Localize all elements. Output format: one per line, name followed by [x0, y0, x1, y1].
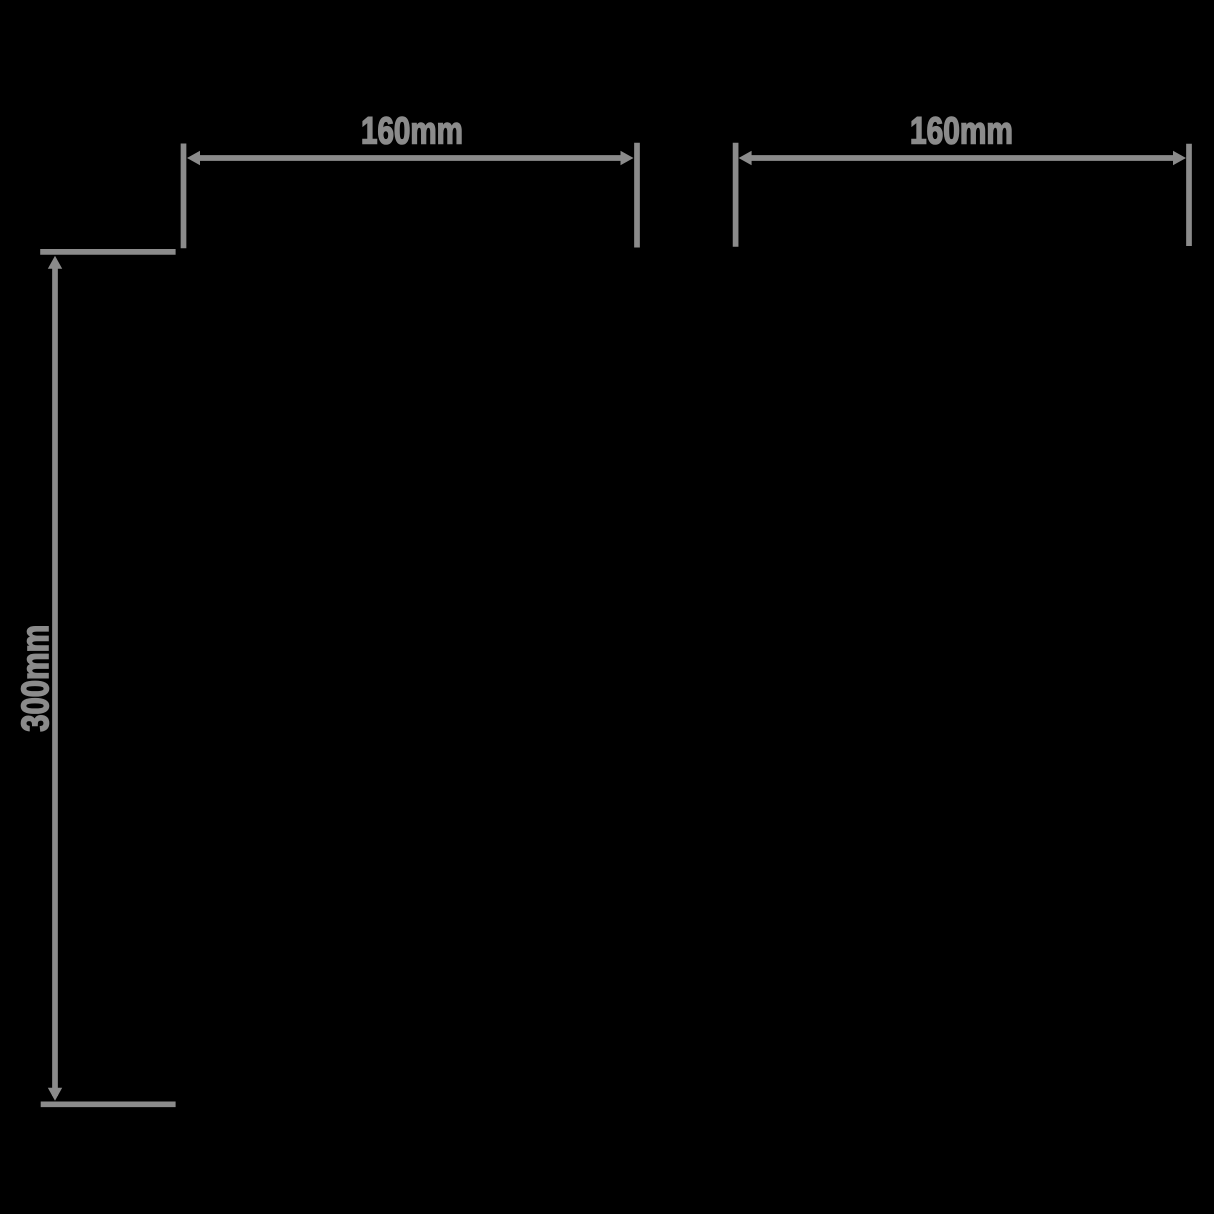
svg-text:300mm: 300mm	[15, 625, 57, 732]
svg-text:160mm: 160mm	[361, 110, 463, 152]
svg-text:160mm: 160mm	[910, 110, 1013, 152]
